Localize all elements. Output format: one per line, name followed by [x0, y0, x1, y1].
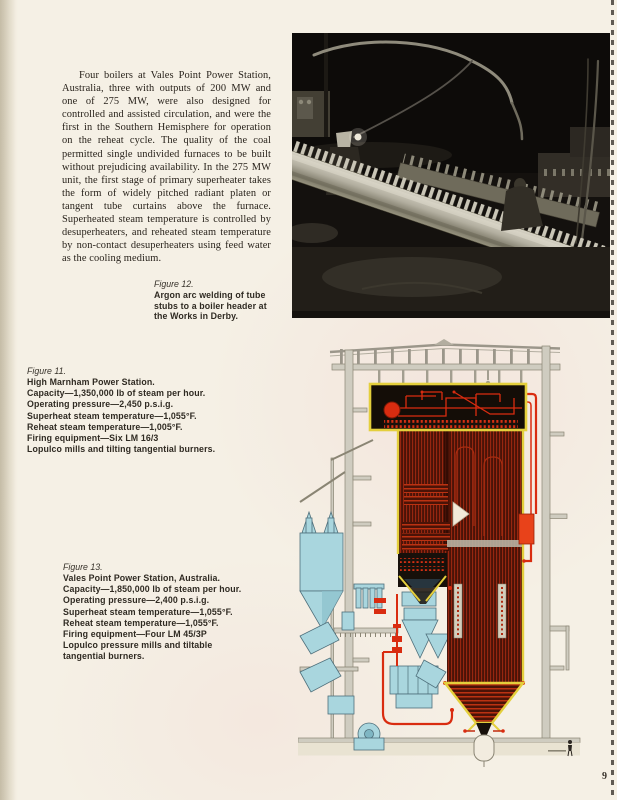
caption-line: Lopulco pressure mills and tiltable — [63, 640, 241, 651]
caption-line: Firing equipment—Six LM 16/3 — [27, 433, 215, 444]
intro-paragraph: Four boilers at Vales Point Power Statio… — [62, 69, 271, 265]
figure13-diagram — [298, 336, 616, 774]
caption-line: Reheat steam temperature—1,055°F. — [63, 618, 241, 629]
caption-line: Operating pressure—2,450 p.s.i.g. — [27, 399, 215, 410]
caption-line: Superheat steam temperature—1,055°F. — [27, 411, 215, 422]
caption-line: the Works in Derby. — [154, 311, 267, 322]
steam-drum — [384, 402, 400, 418]
ash-vessel — [474, 735, 494, 761]
caption-line: Operating pressure—2,400 p.s.i.g. — [63, 595, 241, 606]
caption-line: Capacity—1,850,000 lb of steam per hour. — [63, 584, 241, 595]
caption-line: Reheat steam temperature—1,005°F. — [27, 422, 215, 433]
weld-glow — [349, 128, 367, 146]
caption-line: stubs to a boiler header at — [154, 301, 267, 312]
caption-line: Lopulco mills and tilting tangential bur… — [27, 444, 215, 455]
welding-photo-art — [292, 33, 610, 318]
caption-line: Capacity—1,350,000 lb of steam per hour. — [27, 388, 215, 399]
figure12-photo — [292, 33, 610, 318]
figure12-caption: Figure 12. Argon arc welding of tube stu… — [154, 279, 267, 322]
book-page: Four boilers at Vales Point Power Statio… — [0, 0, 617, 800]
caption-line: High Marnham Power Station. — [27, 377, 215, 388]
boiler-section-art — [298, 336, 616, 774]
binding-shadow — [0, 0, 16, 800]
caption-line: Superheat steam temperature—1,055°F. — [63, 607, 241, 618]
caption-line: tangential burners. — [63, 651, 241, 662]
page-edge-dashes — [611, 0, 614, 800]
figure11-caption: Figure 11. High Marnham Power Station. C… — [27, 366, 215, 455]
page-number: 9 — [602, 771, 607, 782]
caption-line: Firing equipment—Four LM 45/3P — [63, 629, 241, 640]
coal-bunker — [300, 512, 343, 640]
figure12-label: Figure 12. — [154, 279, 267, 290]
figure11-label: Figure 11. — [27, 366, 215, 377]
penthouse — [370, 384, 526, 430]
caption-line: Argon arc welding of tube — [154, 290, 267, 301]
figure13-caption: Figure 13. Vales Point Power Station, Au… — [63, 562, 241, 663]
caption-line: Vales Point Power Station, Australia. — [63, 573, 241, 584]
economiser-block — [519, 514, 534, 544]
figure13-label: Figure 13. — [63, 562, 241, 573]
